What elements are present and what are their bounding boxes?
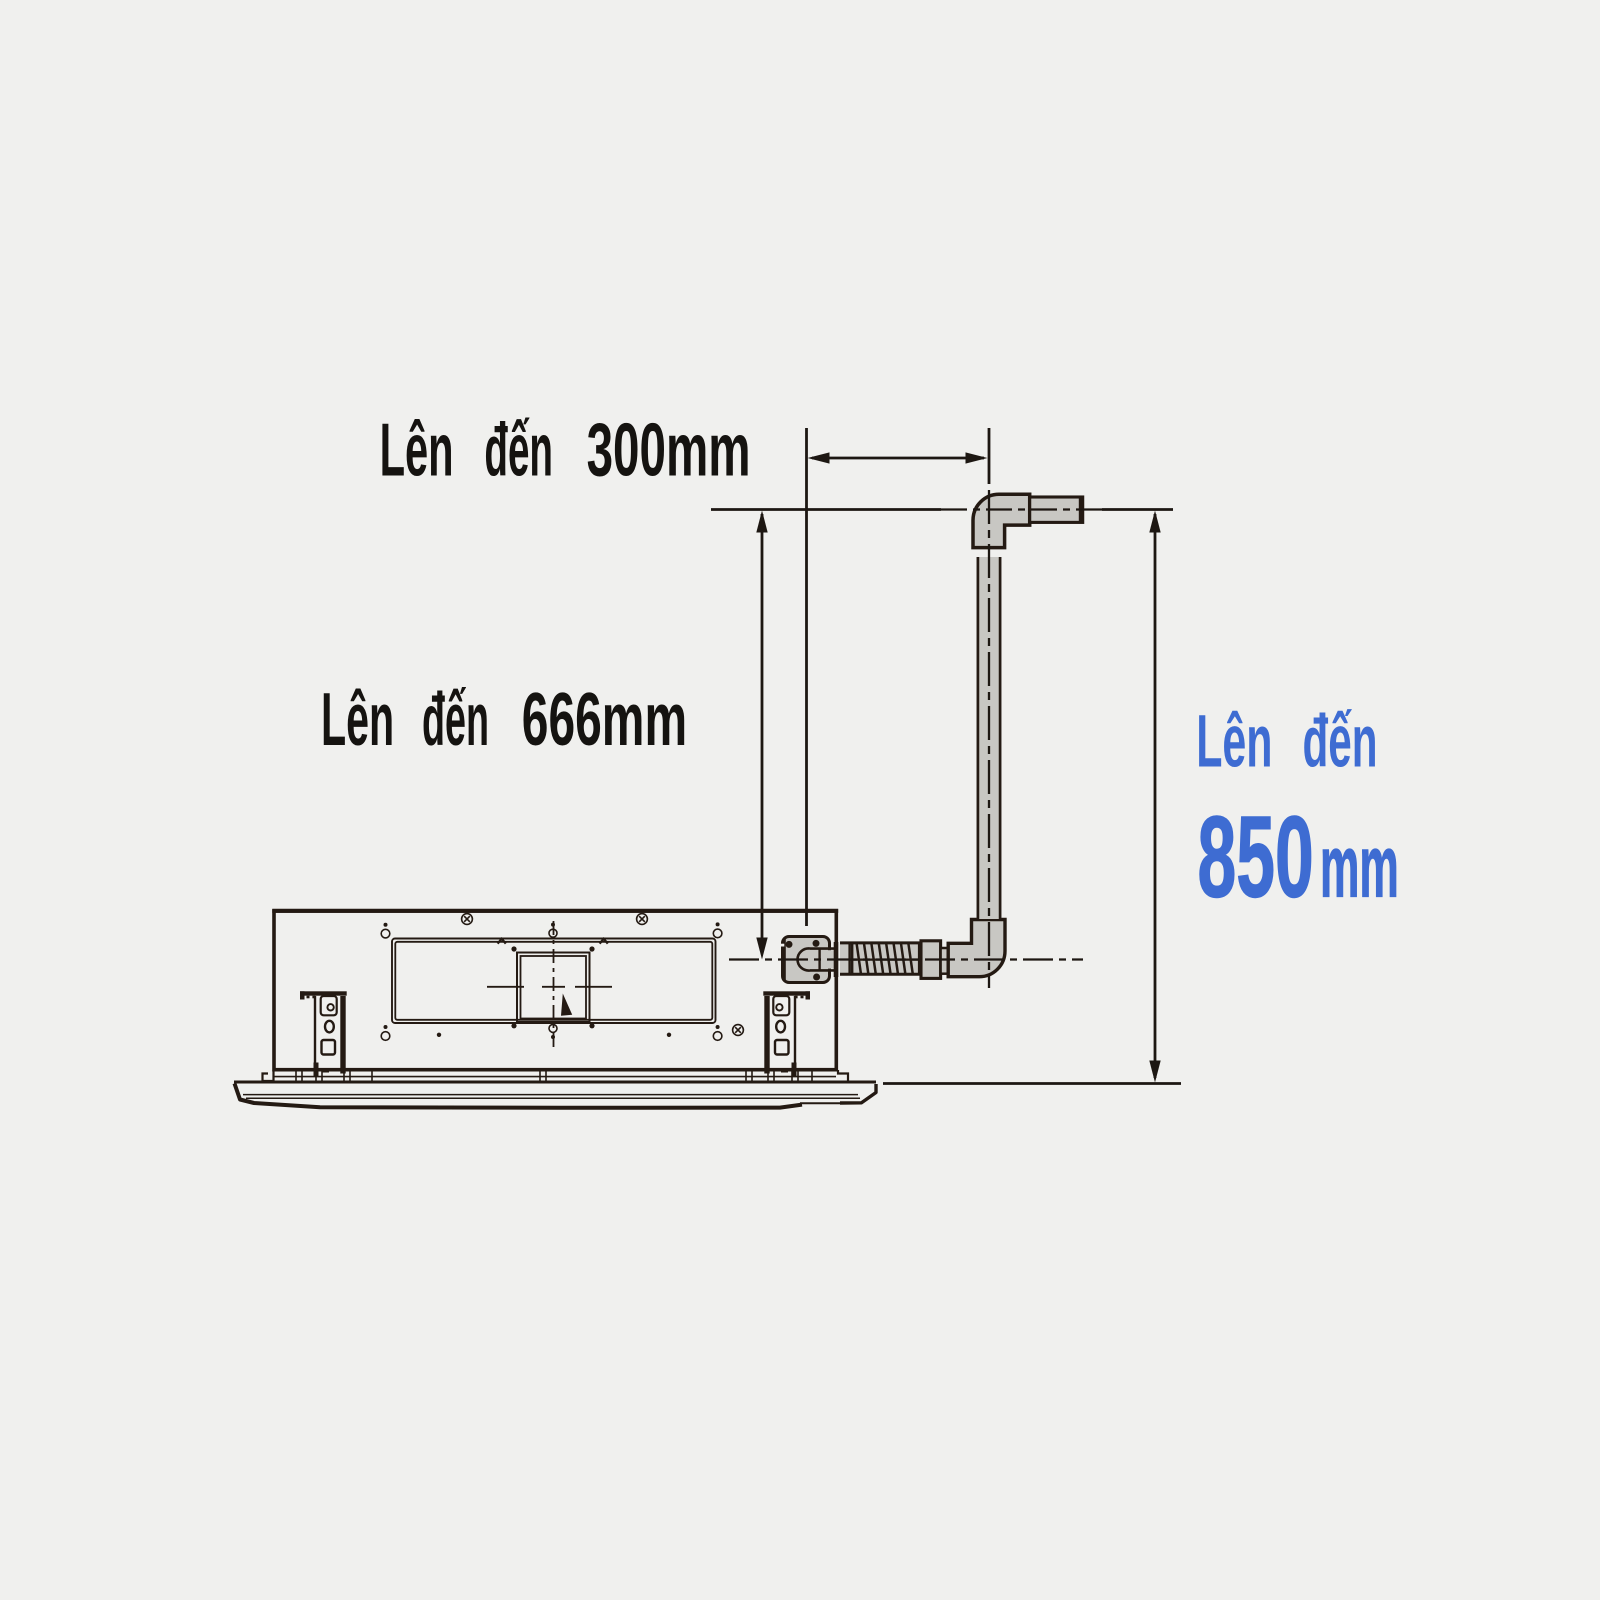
svg-text:đến: đến [422,677,489,761]
svg-text:đến: đến [484,408,553,492]
svg-text:300mm: 300mm [587,408,751,492]
svg-text:Lên: Lên [1196,699,1272,782]
svg-text:666mm: 666mm [522,677,687,761]
svg-text:Lên: Lên [321,677,394,761]
svg-text:mm: mm [1320,816,1399,915]
svg-text:850: 850 [1198,793,1314,921]
svg-text:đến: đến [1303,699,1378,782]
svg-text:Lên: Lên [380,408,454,492]
